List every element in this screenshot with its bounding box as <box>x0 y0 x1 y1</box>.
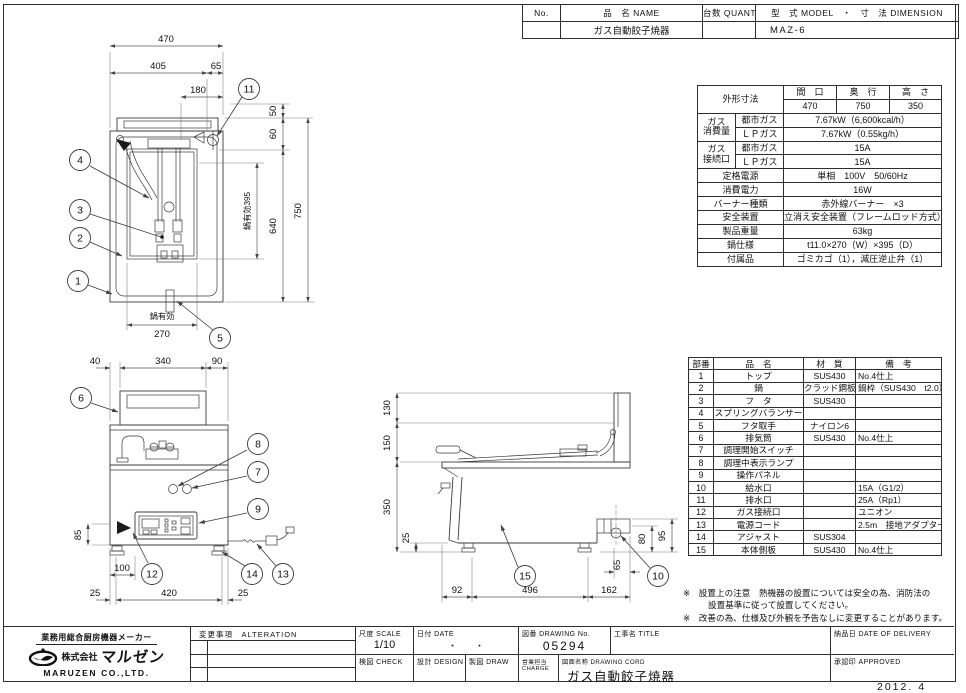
parts-cell: SUS304 <box>804 531 856 543</box>
spec-gas-lp-label: ＬＰガス <box>736 127 784 141</box>
callout-8: 8 <box>248 434 269 455</box>
parts-cell <box>856 457 942 469</box>
parts-cell: クラッド鋼板 <box>804 382 856 394</box>
drawing-name-label: 図面名称 DRAWING CORD <box>559 655 830 666</box>
parts-cell: 14 <box>689 531 714 543</box>
lid-handle <box>436 446 460 453</box>
parts-row: 7調理開始スイッチ <box>689 444 942 456</box>
parts-cell <box>804 444 856 456</box>
callout-9: 9 <box>248 499 269 520</box>
spec-conn-label: ガス接続口 <box>698 141 736 169</box>
parts-cell: 排水口 <box>714 494 804 506</box>
spec-pan-label: 鍋仕様 <box>698 238 784 252</box>
spec-power-value: 単相 100V 50/60Hz <box>784 169 942 183</box>
spec-conn-lp-label: ＬＰガス <box>736 155 784 169</box>
spec-depth-value: 750 <box>837 99 890 113</box>
parts-cell: No.4仕上 <box>856 543 942 555</box>
parts-cell <box>804 481 856 493</box>
parts-cell: アジャスト <box>714 531 804 543</box>
drawing-name-cell: 図面名称 DRAWING CORD ガス自動餃子焼器 <box>558 654 830 681</box>
drawing-sheet: { "plate": { "no_label": "No.", "name_la… <box>0 0 966 692</box>
design-label: 設計 DESIGN <box>414 655 465 667</box>
spec-gas-label: ガス消費量 <box>698 113 736 141</box>
parts-cell: ナイロン6 <box>804 419 856 431</box>
parts-cell: No.4仕上 <box>856 370 942 382</box>
maker-company-prefix: 株式会社 <box>61 650 97 663</box>
parts-cell: 給水口 <box>714 481 804 493</box>
parts-cell: 5 <box>689 419 714 431</box>
control-panel <box>135 512 197 539</box>
callout-13: 13 <box>273 564 294 585</box>
spec-gas-city-label: 都市ガス <box>736 113 784 127</box>
parts-row: 6排気筒SUS430No.4仕上 <box>689 432 942 444</box>
parts-row: 1トップSUS430No.4仕上 <box>689 370 942 382</box>
spec-safety-label: 安全装置 <box>698 211 784 225</box>
parts-header-no: 部番 <box>689 358 714 370</box>
parts-header-remarks: 備 考 <box>856 358 942 370</box>
parts-cell: 9 <box>689 469 714 481</box>
installation-notes: ※ 設置上の注意 熱機器の設置については安全の為、消防法の 設置基準に従って設置… <box>683 587 959 624</box>
parts-cell: 調理開始スイッチ <box>714 444 804 456</box>
callout-4: 4 <box>70 150 91 171</box>
parts-cell: SUS430 <box>804 395 856 407</box>
parts-header-name: 品 名 <box>714 358 804 370</box>
dim-plan-180: 180 <box>190 85 206 96</box>
parts-row: 8調理中表示ランプ <box>689 457 942 469</box>
dim-side-162: 162 <box>601 585 617 596</box>
parts-cell: トップ <box>714 370 804 382</box>
plate-model-header: 型 式 MODEL ・ 寸 法 DIMENSION <box>756 5 959 22</box>
alteration-label: 変更事項 ALTERATION <box>191 627 355 640</box>
parts-cell <box>856 419 942 431</box>
spec-width-label: 間 口 <box>784 86 837 100</box>
spec-gas-lp-value: 7.67kW（0.55kg/h） <box>784 127 942 141</box>
plate-name-value: ガス自動餃子焼器 <box>561 22 703 39</box>
pilot-pointer-icon <box>194 132 204 143</box>
spec-pan-value: t11.0×270（W）×395（D） <box>784 238 942 252</box>
parts-cell: 調理中表示ランプ <box>714 457 804 469</box>
svg-text:1: 1 <box>75 276 81 288</box>
svg-text:6: 6 <box>78 393 84 405</box>
date-stamp: 2012. 4 <box>877 681 926 693</box>
callout-6: 6 <box>71 388 92 409</box>
plate-qty-value <box>703 22 756 39</box>
spec-acc-label: 付属品 <box>698 252 784 266</box>
dim-plan-395: 鍋有効395 <box>242 191 252 230</box>
parts-header-material: 材 質 <box>804 358 856 370</box>
spec-height-label: 高 さ <box>890 86 942 100</box>
parts-cell: 電源コード <box>714 519 804 531</box>
date-label: 日付 DATE <box>414 627 518 639</box>
spec-weight-label: 製品重量 <box>698 224 784 238</box>
delivery-label: 納品日 DATE OF DELIVERY <box>831 627 954 639</box>
draw-cell: 製図 DRAW <box>465 654 518 681</box>
parts-cell: 2 <box>689 382 714 394</box>
svg-text:7: 7 <box>255 467 261 479</box>
parts-cell: 25A（Rp1） <box>856 494 942 506</box>
svg-text:12: 12 <box>146 569 158 581</box>
spec-burner-value: 赤外線バーナー ×3 <box>784 197 942 211</box>
dim-side-65: 65 <box>612 560 623 571</box>
parts-cell <box>856 531 942 543</box>
charge-cell: 営業担当 CHARGE <box>518 654 558 681</box>
dim-side-130: 130 <box>382 400 393 416</box>
dim-plan-270: 270 <box>154 329 170 340</box>
parts-cell: 15A（G1/2） <box>856 481 942 493</box>
spec-consumption-value: 16W <box>784 183 942 197</box>
parts-cell: SUS430 <box>804 543 856 555</box>
dim-plan-405: 405 <box>150 61 166 72</box>
callout-10: 10 <box>648 566 669 587</box>
dim-front-40: 40 <box>90 356 101 367</box>
parts-row: 3フ タSUS430 <box>689 395 942 407</box>
parts-cell <box>804 494 856 506</box>
svg-text:9: 9 <box>255 504 261 516</box>
dim-plan-50: 50 <box>268 106 279 117</box>
parts-cell <box>804 457 856 469</box>
dim-front-340: 340 <box>155 356 171 367</box>
parts-row: 11排水口25A（Rp1） <box>689 494 942 506</box>
svg-text:11: 11 <box>244 84 255 96</box>
note-line-3: ※ 改善の為、仕様及び外観を予告なしに変更することがあります。 <box>683 612 959 624</box>
parts-cell: 10 <box>689 481 714 493</box>
spec-table: 外形寸法 間 口 奥 行 高 さ 470 750 350 ガス消費量 都市ガス … <box>697 85 942 267</box>
plate-qty-header: 台数 QUANTITY <box>703 5 756 22</box>
maker-tagline: 業務用総合厨房機器メーカー <box>36 632 157 645</box>
plate-no-value <box>523 22 561 39</box>
svg-text:8: 8 <box>255 439 261 451</box>
parts-cell <box>856 395 942 407</box>
parts-cell: フ タ <box>714 395 804 407</box>
spec-weight-value: 63kg <box>784 224 942 238</box>
spec-conn-label-2: 接続口 <box>703 154 730 164</box>
date-cell: 日付 DATE ・ ・ <box>413 627 518 654</box>
parts-cell <box>856 469 942 481</box>
parts-cell: 11 <box>689 494 714 506</box>
spec-power-label: 定格電源 <box>698 169 784 183</box>
spec-gas-label-2: 消費量 <box>703 126 730 136</box>
spec-height-value: 350 <box>890 99 942 113</box>
parts-cell: ガス接続口 <box>714 506 804 518</box>
power-cord <box>228 527 294 545</box>
spec-burner-label: バーナー種類 <box>698 197 784 211</box>
callout-5: 5 <box>210 328 231 349</box>
plate-name-header: 品 名 NAME <box>561 5 703 22</box>
parts-cell: スプリングバランサー <box>714 407 804 419</box>
parts-row: 12ガス接続口ユニオン <box>689 506 942 518</box>
technical-drawing-views: 470 405 65 180 50 60 鍋有効395 640 750 鍋有効 … <box>0 0 700 630</box>
scale-label: 尺度 SCALE <box>356 627 413 639</box>
parts-cell: SUS430 <box>804 370 856 382</box>
knob-right <box>183 485 192 494</box>
svg-text:13: 13 <box>277 569 289 581</box>
dim-plan-60: 60 <box>268 129 279 140</box>
parts-cell: No.4仕上 <box>856 432 942 444</box>
water-inlet-fitting <box>597 519 630 533</box>
check-cell: 検図 CHECK <box>355 654 413 681</box>
parts-cell <box>804 407 856 419</box>
side-view: 130 150 350 25 80 95 65 92 496 162 15 <box>382 393 678 602</box>
maker-brand: マルゼン <box>99 646 165 667</box>
dim-plan-pan-eff: 鍋有効 <box>150 311 175 321</box>
parts-header-row: 部番 品 名 材 質 備 考 <box>689 358 942 370</box>
dim-side-92: 92 <box>452 585 463 596</box>
parts-table: 部番 品 名 材 質 備 考 1トップSUS430No.4仕上2鍋クラッド鋼板鍋… <box>688 357 942 556</box>
spec-conn-city-value: 15A <box>784 141 942 155</box>
spec-conn-city-label: 都市ガス <box>736 141 784 155</box>
parts-cell: 12 <box>689 506 714 518</box>
spec-consumption-label: 消費電力 <box>698 183 784 197</box>
check-label: 検図 CHECK <box>356 655 413 667</box>
dim-plan-65: 65 <box>211 61 222 72</box>
drawing-no-value: 05294 <box>519 639 610 653</box>
dim-front-85: 85 <box>73 530 84 541</box>
maker-block: 業務用総合厨房機器メーカー 株式会社 マルゼン MARUZEN CO.,LTD. <box>3 627 190 681</box>
parts-row: 5フタ取手ナイロン6 <box>689 419 942 431</box>
approved-cell: 承認印 APPROVED <box>830 654 954 681</box>
title-block: 業務用総合厨房機器メーカー 株式会社 マルゼン MARUZEN CO.,LTD.… <box>3 626 954 681</box>
drain-pipe-plan <box>166 290 174 312</box>
parts-table-body: 1トップSUS430No.4仕上2鍋クラッド鋼板鍋枠（SUS430 t2.0）3… <box>689 370 942 556</box>
parts-cell: 7 <box>689 444 714 456</box>
parts-cell: 鍋 <box>714 382 804 394</box>
spec-depth-label: 奥 行 <box>837 86 890 100</box>
parts-cell <box>804 469 856 481</box>
parts-cell: 2.5m 接地アダプター付 <box>856 519 942 531</box>
scale-value: 1/10 <box>356 639 413 651</box>
alteration-block: 変更事項 ALTERATION <box>190 627 355 681</box>
parts-row: 9操作パネル <box>689 469 942 481</box>
dim-side-25: 25 <box>401 533 412 544</box>
svg-text:4: 4 <box>77 155 83 167</box>
dim-plan-470: 470 <box>158 34 174 45</box>
parts-cell: 操作パネル <box>714 469 804 481</box>
spec-gas-city-value: 7.67kW（6,600kcal/h） <box>784 113 942 127</box>
dim-front-100: 100 <box>114 563 130 574</box>
dim-front-90: 90 <box>212 356 223 367</box>
parts-cell: 4 <box>689 407 714 419</box>
parts-cell <box>856 407 942 419</box>
dim-plan-640: 640 <box>268 218 279 234</box>
draw-label: 製図 DRAW <box>466 655 518 667</box>
plate-model-value: MAZ-6 <box>756 22 959 39</box>
callout-11: 11 <box>239 79 260 100</box>
title-label: 工事名 TITLE <box>611 627 830 639</box>
parts-row: 4スプリングバランサー <box>689 407 942 419</box>
delivery-cell: 納品日 DATE OF DELIVERY <box>830 627 954 654</box>
maker-company-en: MARUZEN CO.,LTD. <box>3 668 190 678</box>
parts-cell: 本体側板 <box>714 543 804 555</box>
dim-plan-750: 750 <box>293 203 304 219</box>
spec-width-value: 470 <box>784 99 837 113</box>
title-plate-table: No. 品 名 NAME 台数 QUANTITY 型 式 MODEL ・ 寸 法… <box>522 4 959 39</box>
parts-cell <box>804 519 856 531</box>
charge-label: 営業担当 CHARGE <box>519 655 558 672</box>
dim-front-420: 420 <box>161 588 177 599</box>
dim-side-95: 95 <box>657 531 668 542</box>
spec-conn-label-1: ガス <box>707 144 725 154</box>
dim-side-80: 80 <box>637 534 648 545</box>
callout-3: 3 <box>70 200 91 221</box>
drawing-name-value: ガス自動餃子焼器 <box>559 666 830 685</box>
parts-row: 13電源コード2.5m 接地アダプター付 <box>689 519 942 531</box>
svg-text:14: 14 <box>246 569 258 581</box>
callout-14: 14 <box>242 564 263 585</box>
spec-acc-value: ゴミカゴ（1），減圧逆止弁（1） <box>784 252 942 266</box>
plate-no-header: No. <box>523 5 561 22</box>
parts-cell <box>856 444 942 456</box>
approved-label: 承認印 APPROVED <box>831 655 954 667</box>
design-cell: 設計 DESIGN <box>413 654 465 681</box>
spec-dim-label: 外形寸法 <box>698 86 784 114</box>
dim-side-350: 350 <box>382 499 393 515</box>
knob-left <box>169 485 178 494</box>
scale-cell: 尺度 SCALE 1/10 <box>355 627 413 654</box>
svg-text:15: 15 <box>519 571 531 583</box>
parts-cell: 1 <box>689 370 714 382</box>
callout-2: 2 <box>70 228 91 249</box>
callout-1: 1 <box>68 271 89 292</box>
dim-front-25l: 25 <box>90 588 101 599</box>
parts-cell: SUS430 <box>804 432 856 444</box>
parts-row: 10給水口15A（G1/2） <box>689 481 942 493</box>
parts-cell: 8 <box>689 457 714 469</box>
svg-text:3: 3 <box>77 205 83 217</box>
parts-cell: 13 <box>689 519 714 531</box>
note-line-2: 設置基準に従って設置してください。 <box>683 599 959 611</box>
svg-text:5: 5 <box>217 333 223 345</box>
parts-cell: ユニオン <box>856 506 942 518</box>
drawing-no-cell: 図番 DRAWING No. 05294 <box>518 627 610 654</box>
parts-cell: 6 <box>689 432 714 444</box>
front-view: 40 340 90 85 100 25 420 25 6 8 7 9 <box>71 356 295 605</box>
maruzen-logo-icon <box>28 648 58 666</box>
spec-safety-value: 立消え安全装置（フレームロッド方式） <box>784 211 942 225</box>
plan-view: 470 405 65 180 50 60 鍋有効395 640 750 鍋有効 … <box>68 34 316 349</box>
parts-row: 15本体側板SUS430No.4仕上 <box>689 543 942 555</box>
note-line-1: ※ 設置上の注意 熱機器の設置については安全の為、消防法の <box>683 587 959 599</box>
parts-row: 14アジャストSUS304 <box>689 531 942 543</box>
callout-12: 12 <box>142 564 163 585</box>
dim-side-150: 150 <box>382 435 393 451</box>
parts-cell: 15 <box>689 543 714 555</box>
spec-conn-lp-value: 15A <box>784 155 942 169</box>
svg-text:2: 2 <box>77 233 83 245</box>
parts-row: 2鍋クラッド鋼板鍋枠（SUS430 t2.0） <box>689 382 942 394</box>
dim-front-25r: 25 <box>238 588 249 599</box>
drawing-no-label: 図番 DRAWING No. <box>519 627 610 639</box>
parts-cell: 排気筒 <box>714 432 804 444</box>
date-value: ・ ・ <box>414 639 518 652</box>
callout-7: 7 <box>248 462 269 483</box>
parts-cell: 鍋枠（SUS430 t2.0） <box>856 382 942 394</box>
parts-cell: 3 <box>689 395 714 407</box>
title-cell: 工事名 TITLE <box>610 627 830 654</box>
parts-cell <box>804 506 856 518</box>
parts-cell: フタ取手 <box>714 419 804 431</box>
svg-text:10: 10 <box>652 571 664 583</box>
gas-inlet-arrow <box>117 521 131 534</box>
callout-15: 15 <box>515 566 536 587</box>
